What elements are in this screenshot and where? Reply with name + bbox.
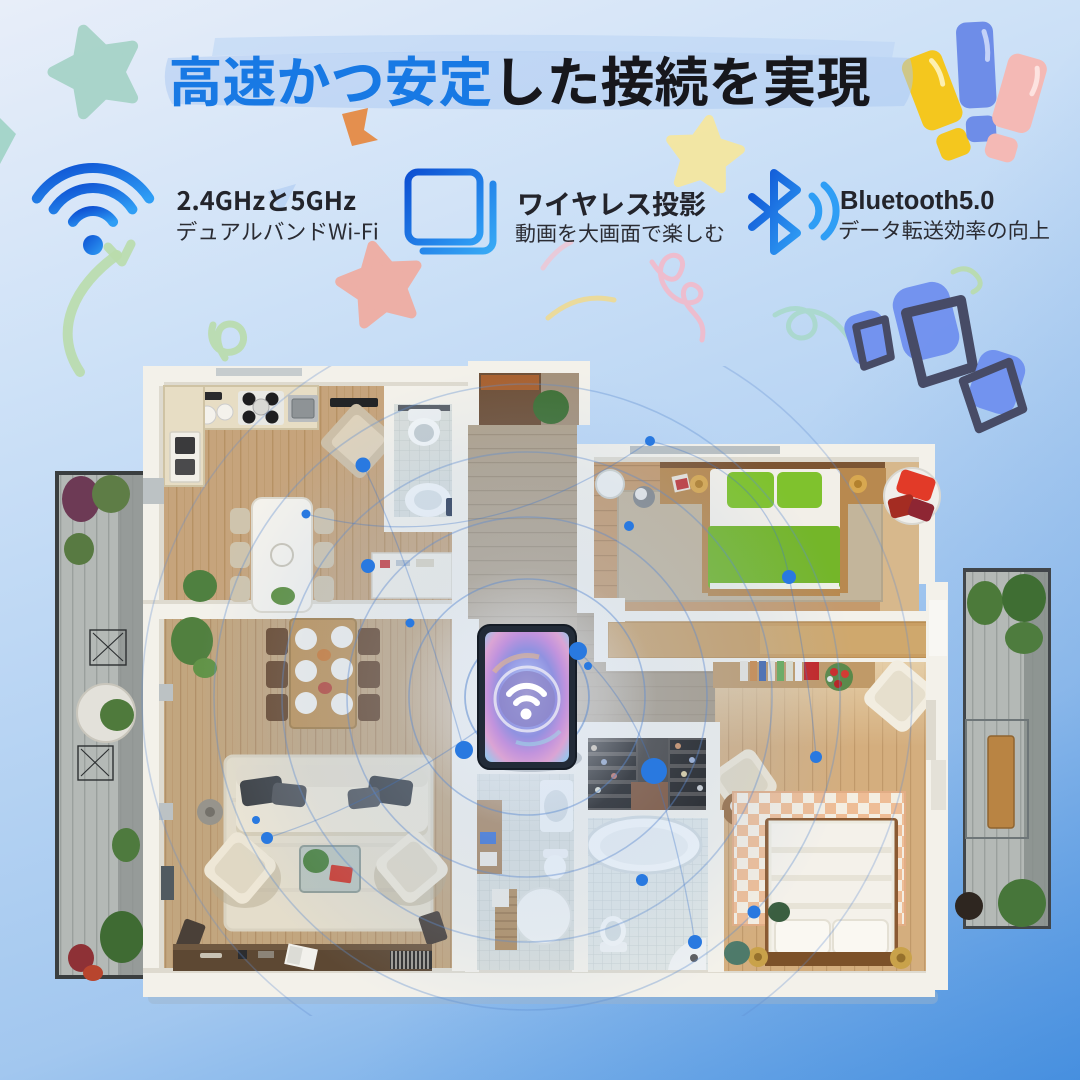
svg-text:Bluetooth5.0: Bluetooth5.0: [840, 187, 994, 215]
